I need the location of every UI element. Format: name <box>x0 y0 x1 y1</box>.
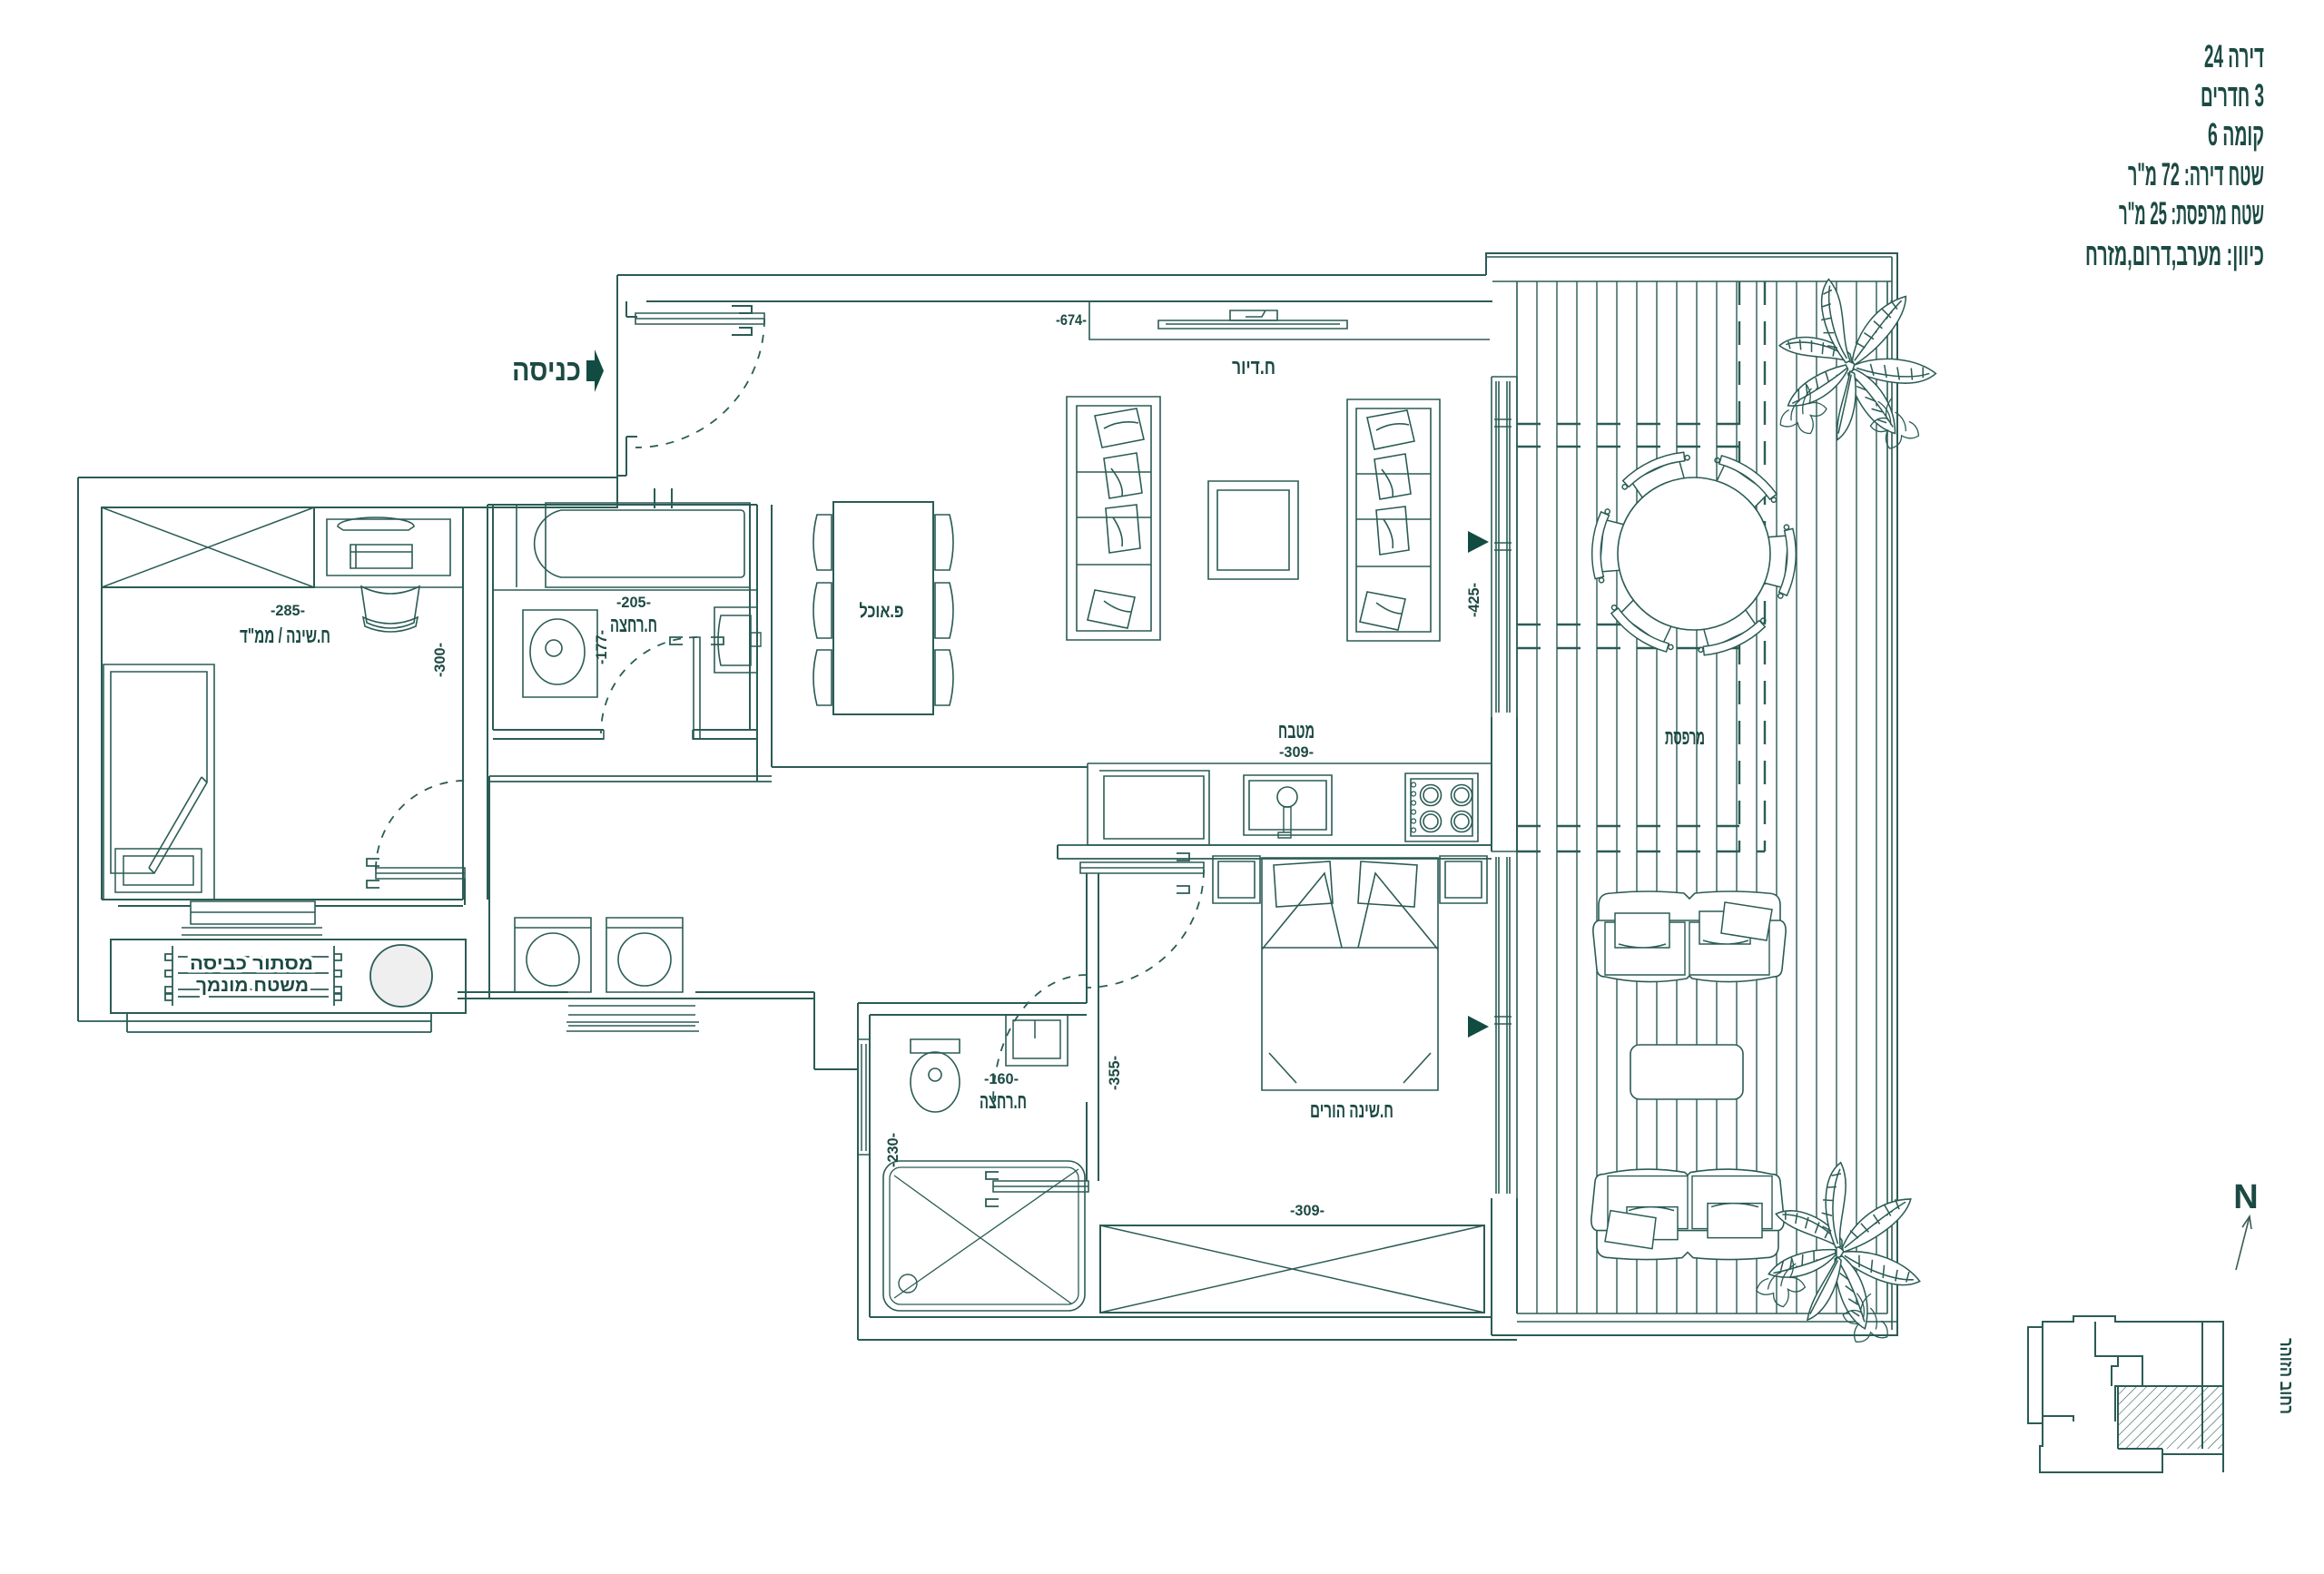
svg-text:פ.אוכל: פ.אוכל <box>860 601 904 622</box>
svg-text:משטח מונמך: משטח מונמך <box>196 976 309 996</box>
svg-text:ח.שינה הורים: ח.שינה הורים <box>1310 1098 1393 1122</box>
svg-text:3 חדרים: 3 חדרים <box>2201 78 2264 113</box>
svg-text:ח.רחצה: ח.רחצה <box>610 613 657 636</box>
svg-text:-300-: -300- <box>431 643 448 677</box>
svg-text:-205-: -205- <box>616 594 651 611</box>
svg-text:קומה 6: קומה 6 <box>2208 117 2264 152</box>
svg-text:מרפסת: מרפסת <box>1665 725 1705 749</box>
svg-text:מטבח: מטבח <box>1278 719 1315 743</box>
svg-text:-674-: -674- <box>1056 311 1087 329</box>
svg-text:מסתור כביסה: מסתור כביסה <box>190 954 313 974</box>
svg-text:דירה 24: דירה 24 <box>2204 39 2264 74</box>
svg-text:כיוון: מערב,דרום,מזרח: כיוון: מערב,דרום,מזרח <box>2085 237 2264 272</box>
svg-text:-285-: -285- <box>271 602 305 619</box>
svg-text:רחוב הזוהר: רחוב הזוהר <box>2276 1338 2296 1414</box>
svg-text:כניסה: כניסה <box>512 353 581 387</box>
svg-text:-425-: -425- <box>1465 583 1482 617</box>
svg-text:-309-: -309- <box>1290 1202 1324 1219</box>
svg-text:שטח מרפסת: 25 מ"ר: שטח מרפסת: 25 מ"ר <box>2119 196 2264 231</box>
svg-text:ח.רחצה: ח.רחצה <box>980 1089 1027 1113</box>
svg-text:שטח דירה: 72 מ"ר: שטח דירה: 72 מ"ר <box>2128 157 2264 192</box>
svg-text:-309-: -309- <box>1279 743 1314 761</box>
svg-text:-177-: -177- <box>593 630 610 664</box>
svg-text:ח.שינה / ממ"ד: ח.שינה / ממ"ד <box>240 624 330 647</box>
svg-text:ח.דיור: ח.דיור <box>1232 355 1275 379</box>
svg-text:-160-: -160- <box>984 1070 1019 1087</box>
svg-text:-355-: -355- <box>1106 1056 1123 1090</box>
svg-text:-230-: -230- <box>884 1133 901 1167</box>
svg-text:N: N <box>2233 1178 2258 1216</box>
